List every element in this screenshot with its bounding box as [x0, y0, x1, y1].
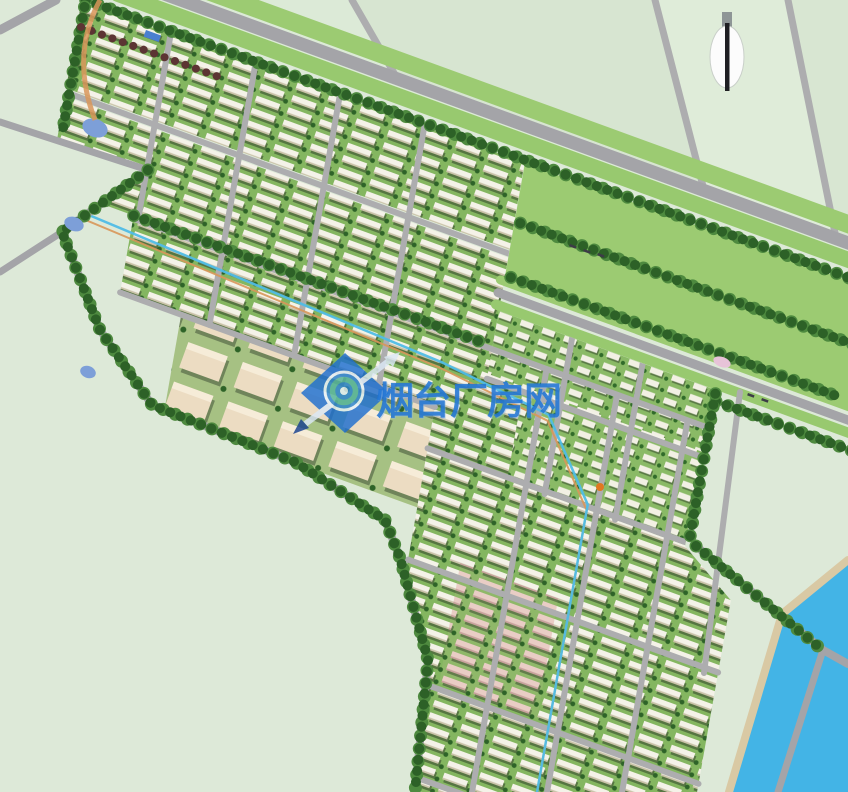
master-plan-map [0, 0, 848, 792]
master-plan-page: 烟台厂房网 [0, 0, 848, 792]
